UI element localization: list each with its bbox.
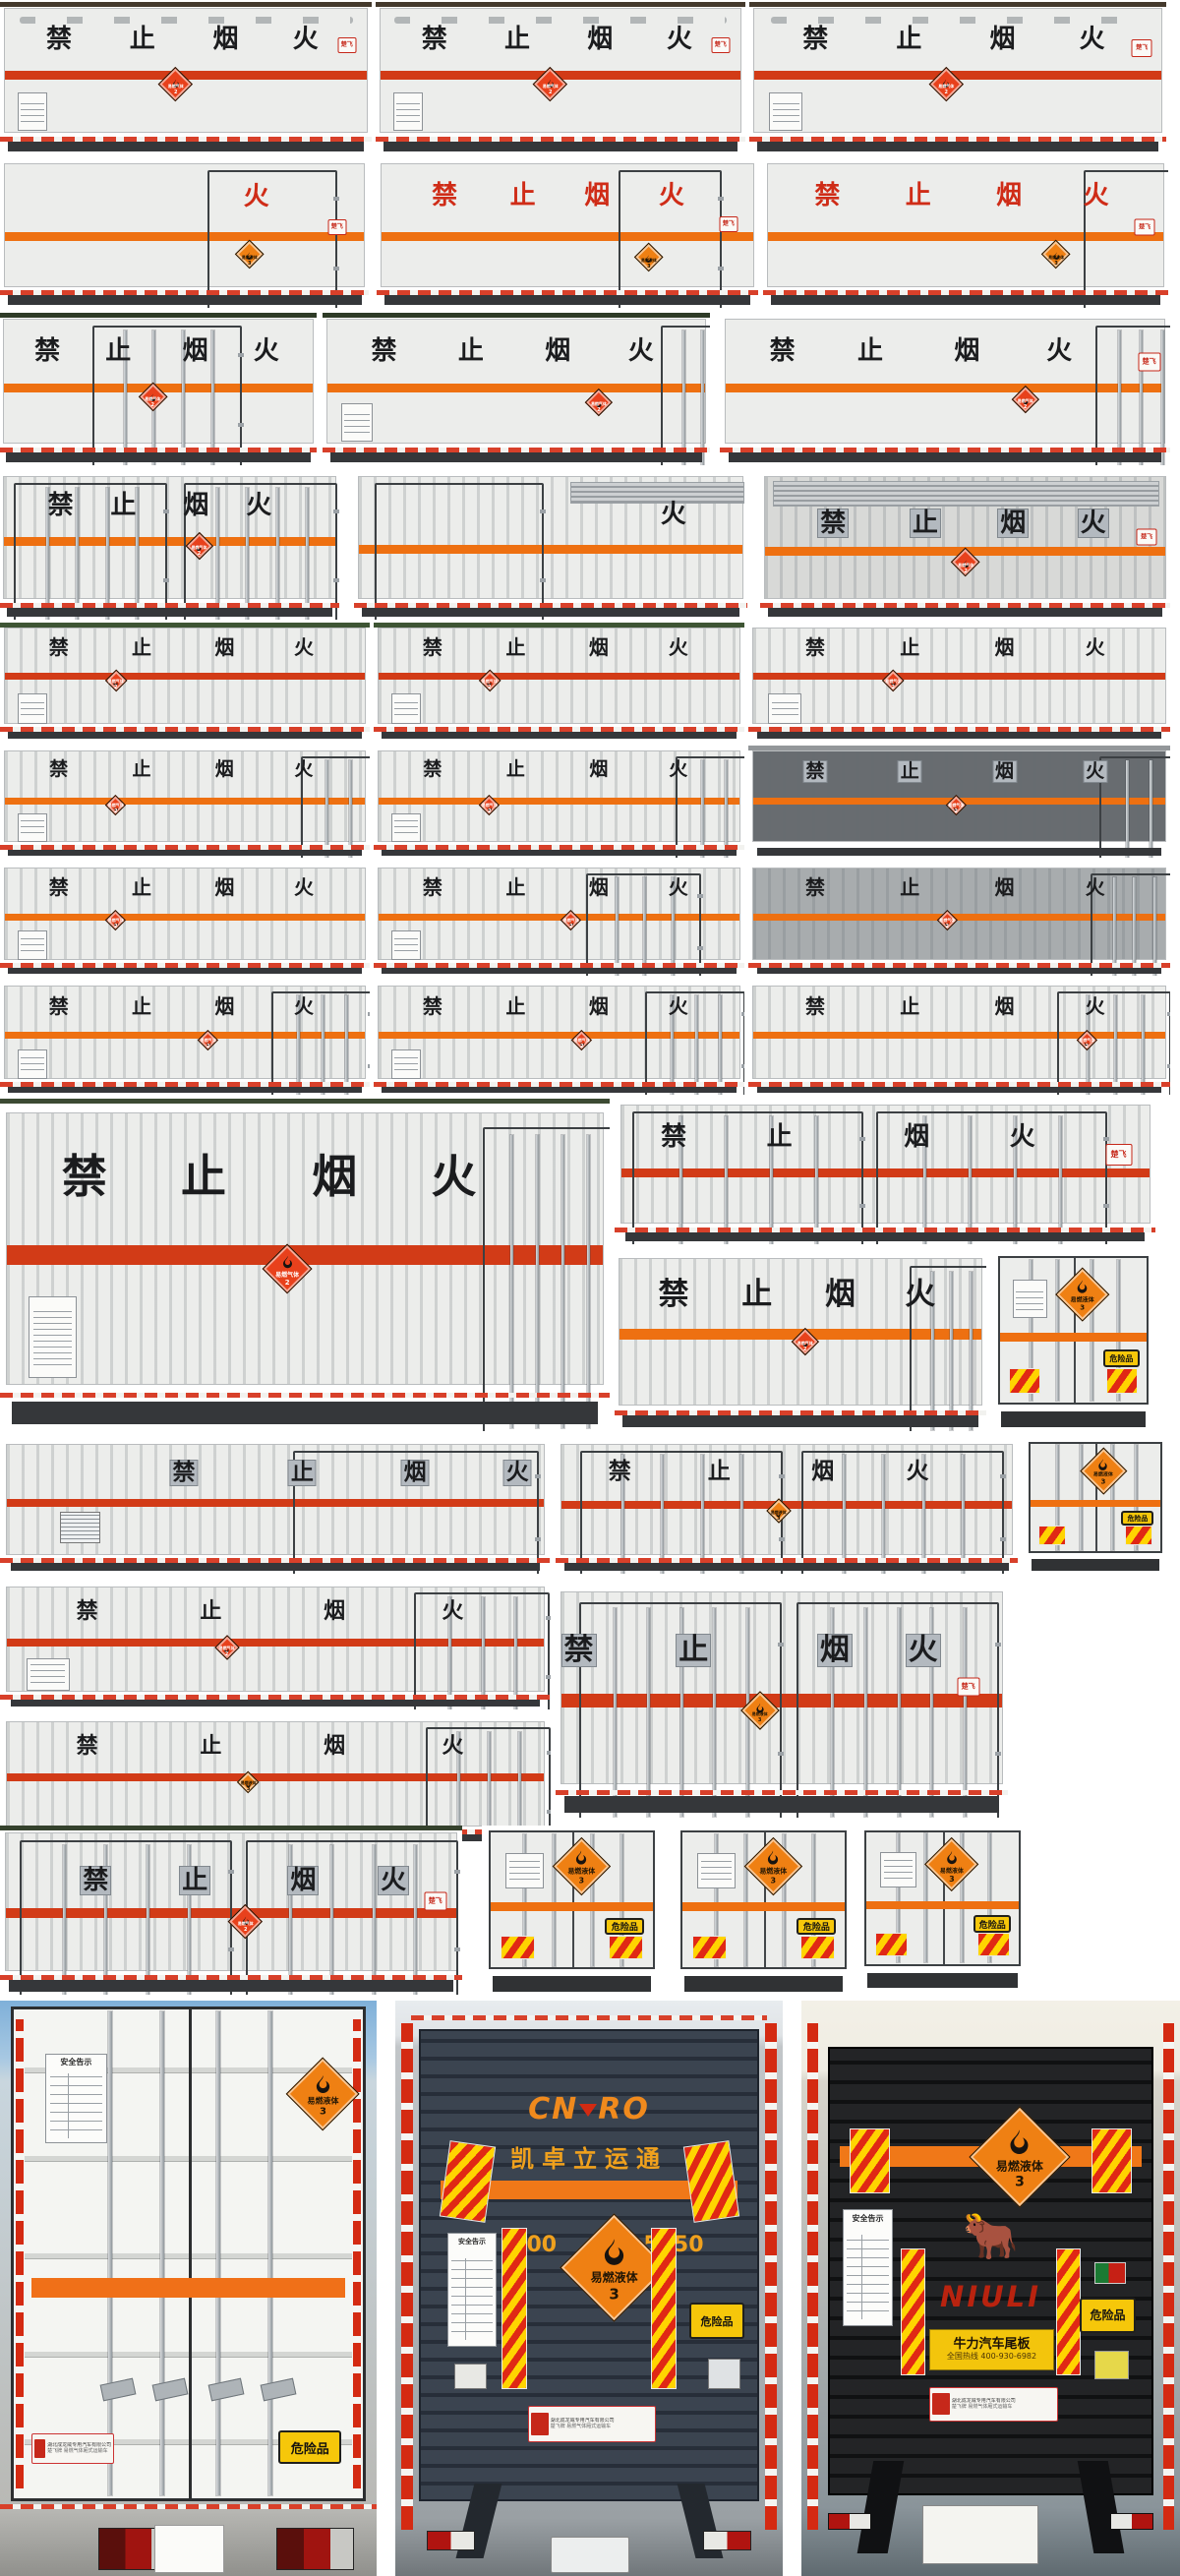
reflective-dash-strip bbox=[0, 727, 370, 732]
chevron-board-inner-left bbox=[501, 2228, 527, 2389]
reflective-dash-strip bbox=[0, 1393, 610, 1398]
no-fireworks-character: 止 bbox=[900, 637, 919, 657]
flame-icon bbox=[112, 672, 119, 679]
no-fireworks-character: 火 bbox=[628, 338, 654, 364]
truck-underbody bbox=[622, 1415, 979, 1428]
ban-char-text: 烟 bbox=[995, 996, 1015, 1016]
brand-badge-text: 楚飞 bbox=[715, 42, 727, 48]
lock-rod-handle bbox=[207, 2377, 244, 2401]
no-fireworks-character: 禁 bbox=[34, 338, 60, 364]
door-lock-rod bbox=[108, 2011, 112, 2495]
ban-char-text: 止 bbox=[896, 27, 921, 52]
placard-class-number: 2 bbox=[114, 809, 117, 814]
reflective-dash-strip bbox=[615, 1228, 1155, 1232]
brand-badge-text: 楚飞 bbox=[331, 224, 343, 230]
ban-char-text: 止 bbox=[900, 996, 919, 1016]
flame-icon bbox=[1022, 390, 1030, 398]
spec-table bbox=[29, 1296, 77, 1378]
no-fireworks-character: 烟 bbox=[324, 1601, 345, 1623]
no-fireworks-character: 火 bbox=[254, 338, 279, 364]
truck-photo-side-view: 禁止烟火易燃气体2 bbox=[0, 863, 370, 976]
flame-icon bbox=[775, 1503, 782, 1510]
door-hinge bbox=[238, 353, 244, 357]
door-hinge bbox=[697, 894, 703, 898]
safety-notice-board: 安全告示 bbox=[45, 2054, 106, 2143]
door-lock-rod bbox=[216, 2011, 220, 2495]
no-fireworks-character: 止 bbox=[900, 877, 919, 897]
hazard-placard: 易燃液体3 bbox=[1059, 1271, 1105, 1317]
no-fireworks-character: 禁 bbox=[48, 493, 74, 518]
vent-grid-panel bbox=[60, 1512, 100, 1543]
ban-char-text: 禁 bbox=[49, 877, 69, 897]
placard-class-number: 2 bbox=[946, 924, 949, 929]
door-lock-rod bbox=[373, 1845, 376, 1995]
truck-underbody bbox=[1001, 1411, 1146, 1427]
no-fireworks-character: 禁 bbox=[62, 1154, 107, 1199]
door-hinge bbox=[697, 946, 703, 950]
door-lock-rod bbox=[643, 877, 646, 976]
door-lock-rod bbox=[970, 1272, 973, 1430]
reflective-frame-right bbox=[1163, 2023, 1175, 2530]
no-fireworks-character: 禁 bbox=[817, 509, 849, 538]
placard-class-number: 3 bbox=[247, 1786, 250, 1792]
spec-table bbox=[391, 930, 421, 960]
no-fireworks-character: 烟 bbox=[214, 877, 234, 897]
brand-badge-text: 楚飞 bbox=[1143, 359, 1156, 366]
ban-char-text: 烟 bbox=[589, 637, 609, 657]
chevron-marker bbox=[692, 1936, 727, 1959]
door-lock-rod bbox=[701, 1455, 704, 1574]
brand-badge-text: 楚飞 bbox=[429, 1897, 442, 1904]
ban-char-text: 止 bbox=[910, 509, 941, 538]
hazard-placard: 易燃气体2 bbox=[265, 1248, 309, 1291]
manufacturer-plate: 湖北成龙威专用汽车有限公司楚飞牌 易燃气体厢式运输车 bbox=[929, 2387, 1057, 2423]
flame-icon bbox=[280, 1255, 295, 1270]
placard-text: 易燃气体 bbox=[275, 1270, 299, 1279]
no-fireworks-character: 止 bbox=[200, 1736, 221, 1758]
ban-char-text: 止 bbox=[505, 877, 525, 897]
spec-table-rows bbox=[394, 698, 418, 720]
ban-char-text: 火 bbox=[442, 1736, 463, 1758]
truck-photo-side-view: 禁止烟火易燃气体2楚飞 bbox=[0, 1826, 462, 1995]
flame-icon bbox=[644, 249, 653, 258]
door-lock-rod bbox=[330, 1845, 333, 1995]
ban-char-text: 禁 bbox=[423, 760, 442, 779]
reflective-dash-strip bbox=[323, 448, 710, 452]
door-hinge bbox=[333, 578, 339, 582]
danger-goods-plate: 危险品 bbox=[278, 2430, 341, 2464]
truck-box-body: 火 bbox=[358, 476, 743, 599]
spec-table bbox=[18, 693, 47, 724]
hazard-stripe bbox=[491, 1902, 652, 1911]
no-fireworks-character: 禁 bbox=[423, 877, 442, 897]
no-fireworks-character: 禁 bbox=[770, 338, 796, 364]
door-hinge bbox=[368, 1064, 370, 1068]
no-fireworks-character: 止 bbox=[767, 1124, 793, 1150]
ban-char-text: 止 bbox=[900, 637, 919, 657]
chevron-marker bbox=[800, 1936, 835, 1959]
spec-table-rows bbox=[1016, 1287, 1043, 1315]
ban-char-text: 烟 bbox=[997, 509, 1029, 538]
placard-class-number: 2 bbox=[803, 1347, 806, 1352]
spec-table-rows bbox=[394, 935, 418, 957]
ban-char-text: 禁 bbox=[432, 183, 457, 209]
background-foliage-strip bbox=[749, 2, 1166, 7]
hazard-placard: 易燃气体2 bbox=[187, 534, 210, 558]
reflective-dash-strip bbox=[0, 845, 370, 850]
flame-icon bbox=[245, 246, 254, 255]
no-fireworks-character: 止 bbox=[510, 183, 536, 209]
door-lock-rod bbox=[1133, 877, 1136, 976]
hazard-placard: 易燃气体2 bbox=[953, 550, 978, 575]
ban-char-text: 烟 bbox=[312, 1154, 357, 1199]
brand-badge-text: 楚飞 bbox=[723, 221, 735, 227]
ban-char-text: 止 bbox=[767, 1124, 793, 1150]
no-fireworks-character: 烟 bbox=[214, 996, 234, 1016]
placard-content: 易燃气体2 bbox=[481, 797, 499, 814]
door-lock-rod bbox=[414, 1845, 417, 1995]
door-lock-rod bbox=[325, 760, 328, 858]
no-fireworks-character: 烟 bbox=[996, 183, 1022, 209]
truck-box-body: 禁止烟火易燃气体2 bbox=[752, 868, 1165, 960]
door-hinge bbox=[333, 197, 339, 201]
truck-photo-side-view: 禁止烟火易燃气体2 bbox=[748, 746, 1170, 858]
no-fireworks-character: 禁 bbox=[46, 27, 72, 52]
truck-box-body: 禁止烟火易燃气体2 bbox=[6, 1112, 604, 1385]
no-fireworks-character: 烟 bbox=[213, 27, 239, 52]
no-fireworks-character: 止 bbox=[505, 996, 525, 1016]
placard-content: 易燃气体2 bbox=[931, 69, 961, 98]
placard-class-number: 2 bbox=[225, 1651, 228, 1657]
no-fireworks-character: 火 bbox=[1079, 27, 1104, 52]
hazard-placard: 易燃气体2 bbox=[481, 797, 499, 814]
no-fireworks-character: 烟 bbox=[825, 1280, 855, 1310]
reflective-dash-strip bbox=[556, 1790, 1008, 1795]
ban-char-text: 止 bbox=[288, 1460, 317, 1486]
hazard-placard: 易燃液体3 bbox=[748, 1841, 798, 1891]
rear-step-plate bbox=[551, 2537, 630, 2573]
cargo-door bbox=[1099, 756, 1170, 858]
no-fireworks-character: 禁 bbox=[805, 637, 825, 657]
door-hinge bbox=[368, 1012, 370, 1016]
no-fireworks-character: 禁 bbox=[372, 338, 397, 364]
no-fireworks-character: 火 bbox=[294, 637, 314, 657]
door-lock-rod bbox=[536, 1135, 539, 1429]
vent-row bbox=[771, 17, 1145, 24]
door-lock-rod bbox=[1056, 1260, 1059, 1401]
door-lock-rod bbox=[898, 1608, 901, 1817]
no-fireworks-character: 禁 bbox=[49, 637, 69, 657]
placard-class-number: 2 bbox=[198, 551, 201, 557]
reflective-dash-strip bbox=[748, 727, 1170, 732]
rear-step-plate bbox=[922, 2505, 1038, 2565]
no-fireworks-character: 火 bbox=[907, 1461, 929, 1483]
ban-char-text: 火 bbox=[661, 502, 686, 527]
door-hinge bbox=[1000, 1474, 1006, 1478]
no-fireworks-character: 禁 bbox=[814, 183, 840, 209]
no-fireworks-character: 火 bbox=[1083, 760, 1107, 783]
ban-char-text: 烟 bbox=[996, 183, 1022, 209]
ban-char-text: 烟 bbox=[214, 637, 234, 657]
ban-char-text: 禁 bbox=[422, 27, 447, 52]
ban-char-text: 火 bbox=[293, 27, 319, 52]
truck-photo-side-view: 禁止烟火易燃气体2 bbox=[0, 746, 370, 858]
no-fireworks-character: 禁 bbox=[805, 996, 825, 1016]
door-lock-rod bbox=[882, 1455, 885, 1574]
chevron-marker bbox=[1038, 1526, 1066, 1544]
hazard-placard: 易燃液体3 bbox=[636, 245, 662, 270]
truck-box-body: 禁止烟火易燃气体2楚飞 bbox=[753, 8, 1162, 133]
door-lock-rod bbox=[682, 330, 685, 465]
box-top-dashes bbox=[411, 2015, 768, 2020]
danger-goods-plate: 危险品 bbox=[973, 1915, 1011, 1932]
no-fireworks-character: 止 bbox=[130, 27, 155, 52]
background-foliage-strip bbox=[0, 1826, 462, 1830]
no-fireworks-character: 火 bbox=[294, 996, 314, 1016]
truck-box-body: 禁止烟火易燃气体2 bbox=[4, 628, 367, 724]
truck-underbody bbox=[564, 1562, 1008, 1572]
truck-box-body: 禁止烟火易燃气体2 bbox=[619, 1258, 982, 1406]
truck-photo-rear-view-small: 易燃液体3危险品 bbox=[991, 1251, 1155, 1431]
ban-char-text: 烟 bbox=[811, 1461, 834, 1483]
niuli-banner-title: 牛力汽车尾板 bbox=[953, 2338, 1030, 2353]
door-lock-rod bbox=[1153, 877, 1156, 976]
truck-underbody bbox=[625, 1231, 1145, 1241]
reflective-dash-strip bbox=[0, 1082, 370, 1087]
ban-char-text: 禁 bbox=[561, 1634, 597, 1667]
truck-photo-side-view: 禁止烟火易燃气体2 bbox=[615, 1251, 986, 1431]
safety-notice-title: 安全告示 bbox=[448, 2237, 496, 2247]
placard-class-number: 3 bbox=[647, 264, 650, 270]
door-hinge bbox=[454, 1870, 460, 1874]
no-fireworks-character: 烟 bbox=[312, 1154, 357, 1199]
ban-char-text: 禁 bbox=[659, 1280, 689, 1310]
spec-table-rows bbox=[21, 818, 44, 839]
door-hinge bbox=[718, 197, 724, 201]
no-fireworks-character: 火 bbox=[906, 1634, 941, 1667]
placard-class-number: 2 bbox=[892, 685, 895, 690]
door-hinge bbox=[163, 578, 169, 582]
flame-icon bbox=[595, 393, 603, 401]
door-lock-rod bbox=[345, 995, 348, 1095]
ban-char-text: 禁 bbox=[805, 637, 825, 657]
manufacturer-text: 湖北成龙威专用汽车有限公司楚飞牌 易燃气体厢式运输车 bbox=[47, 2442, 111, 2454]
door-lock-rod bbox=[1161, 330, 1164, 465]
door-lock-rod bbox=[744, 1834, 747, 1966]
flame-icon bbox=[944, 1850, 960, 1866]
ban-char-text: 烟 bbox=[287, 1866, 319, 1895]
no-fireworks-character: 止 bbox=[506, 760, 525, 779]
placard-content: 易燃气体2 bbox=[947, 797, 965, 814]
no-fireworks-character: 止 bbox=[708, 1461, 731, 1483]
chevron-board-inner-right bbox=[1056, 2248, 1081, 2375]
ban-char-text: 火 bbox=[1079, 27, 1104, 52]
door-lock-rod bbox=[553, 1834, 556, 1966]
no-fireworks-character: 禁 bbox=[77, 1601, 98, 1623]
no-fireworks-character: 烟 bbox=[287, 1866, 319, 1895]
czl-logo: CNRO bbox=[421, 2092, 758, 2127]
manufacturer-plate: 湖北成龙威专用汽车有限公司楚飞牌 易燃气体厢式运输车 bbox=[31, 2433, 114, 2464]
spec-table-rows bbox=[21, 99, 44, 128]
placard-content: 易燃液体3 bbox=[768, 1501, 790, 1523]
ban-char-text: 止 bbox=[105, 338, 131, 364]
flame-icon bbox=[599, 2238, 630, 2269]
hazard-placard: 易燃气体2 bbox=[231, 1906, 261, 1936]
door-hinge bbox=[859, 1137, 865, 1141]
door-lock-rod bbox=[701, 760, 704, 858]
hazard-placard: 易燃液体3 bbox=[567, 2221, 661, 2314]
ban-char-text: 烟 bbox=[183, 338, 208, 364]
no-fireworks-character: 火 bbox=[1086, 637, 1105, 657]
door-lock-rod bbox=[561, 1135, 564, 1429]
chevron-marker bbox=[1106, 1368, 1138, 1393]
flame-icon bbox=[195, 537, 203, 545]
truck-underbody bbox=[493, 1976, 651, 1991]
reflective-dash-strip bbox=[374, 1082, 744, 1087]
safety-notice-divider bbox=[861, 2235, 862, 2319]
flame-icon bbox=[546, 74, 556, 84]
background-foliage-strip bbox=[376, 2, 745, 7]
truck-photo-side-view: 禁止烟火易燃气体2 bbox=[748, 863, 1170, 976]
placard-text: 易燃液体 bbox=[1071, 1294, 1094, 1303]
placard-class-number: 2 bbox=[174, 90, 177, 95]
no-fireworks-character: 止 bbox=[896, 27, 921, 52]
door-lock-rod bbox=[962, 1455, 965, 1574]
truck-box-body: 禁止烟火易燃气体2楚飞 bbox=[4, 8, 368, 133]
no-fireworks-character: 止 bbox=[504, 27, 530, 52]
cargo-door bbox=[414, 1592, 550, 1709]
rear-door-panel: 易燃液体3危险品 bbox=[864, 1830, 1021, 1966]
placard-content: 易燃气体2 bbox=[953, 550, 978, 575]
ban-char-text: 禁 bbox=[805, 877, 825, 897]
door-lock-rod bbox=[160, 2011, 164, 2495]
placard-class-number: 3 bbox=[758, 1717, 761, 1723]
no-fireworks-character: 止 bbox=[132, 637, 151, 657]
flame-icon bbox=[312, 2074, 333, 2096]
truck-photo-side-view: 禁止烟火楚飞 bbox=[615, 1099, 1155, 1244]
spec-table-rows bbox=[396, 99, 420, 128]
truck-photo-side-view: 禁止烟火易燃气体2 bbox=[0, 1099, 610, 1431]
truck-photo-rear-czl-taillift: CNRO凯卓立运通4005550易燃液体3安全告示危险品湖北成龙威专用汽车有限公… bbox=[395, 2001, 783, 2576]
ban-char-text: 止 bbox=[133, 760, 151, 779]
lock-rod-handle bbox=[260, 2377, 296, 2401]
placard-class-number: 2 bbox=[1024, 404, 1027, 410]
door-hinge bbox=[228, 1947, 234, 1951]
no-fireworks-character: 火 bbox=[661, 502, 686, 527]
placard-content: 易燃液体3 bbox=[636, 245, 662, 270]
no-fireworks-character: 禁 bbox=[805, 877, 825, 897]
door-hinge bbox=[535, 1537, 541, 1541]
hazard-placard: 易燃气体2 bbox=[216, 1637, 238, 1658]
ban-char-text: 烟 bbox=[584, 183, 610, 209]
ban-char-text: 禁 bbox=[423, 996, 442, 1016]
reflective-dash-strip bbox=[354, 603, 747, 608]
hazard-placard: 易燃液体3 bbox=[928, 1841, 975, 1888]
no-fireworks-character: 禁 bbox=[80, 1866, 111, 1895]
chevron-marker bbox=[609, 1936, 643, 1959]
flame-icon bbox=[1052, 246, 1061, 255]
manufacturer-logo bbox=[531, 2413, 548, 2435]
manufacturer-line2: 楚飞牌 易燃气体厢式运输车 bbox=[551, 2424, 615, 2429]
placard-content: 易燃液体3 bbox=[1059, 1271, 1105, 1317]
no-fireworks-character: 火 bbox=[244, 184, 269, 210]
chevron-marker bbox=[977, 1933, 1010, 1955]
ban-char-text: 止 bbox=[200, 1601, 221, 1623]
ban-char-text: 禁 bbox=[77, 1736, 98, 1758]
flame-icon bbox=[941, 74, 951, 84]
placard-class-number: 2 bbox=[549, 90, 552, 95]
truck-box-body: 禁止烟火易燃气体2 bbox=[326, 319, 706, 444]
safety-notice-title: 安全告示 bbox=[844, 2213, 892, 2224]
truck-photo-rear-view-small: 易燃液体3危险品 bbox=[482, 1826, 662, 1995]
brand-badge: 楚飞 bbox=[957, 1677, 979, 1696]
ban-char-text: 火 bbox=[378, 1866, 409, 1895]
placard-content: 易燃气体2 bbox=[1078, 1032, 1095, 1049]
no-fireworks-character: 火 bbox=[669, 760, 687, 779]
no-fireworks-character: 火 bbox=[1010, 1124, 1035, 1150]
truck-photo-side-view: 禁止烟火易燃气体2 bbox=[323, 313, 710, 465]
hazard-placard: 易燃气体2 bbox=[587, 390, 611, 414]
hazard-stripe bbox=[327, 384, 705, 392]
ban-char-text: 烟 bbox=[989, 27, 1015, 52]
truck-underbody bbox=[757, 141, 1157, 151]
no-fireworks-character: 火 bbox=[431, 1154, 476, 1199]
reflective-dash-strip bbox=[374, 727, 744, 732]
truck-underbody bbox=[771, 294, 1160, 305]
ban-char-text: 止 bbox=[110, 493, 136, 518]
brand-badge-text: 楚飞 bbox=[1139, 224, 1150, 230]
ban-char-text: 火 bbox=[246, 493, 271, 518]
truck-photo-side-view: 禁止烟火易燃气体2 bbox=[0, 313, 317, 465]
door-lock-rod bbox=[969, 1116, 972, 1244]
truck-box-body: 禁止烟火易燃气体2 bbox=[378, 986, 740, 1079]
no-fireworks-character: 烟 bbox=[589, 637, 609, 657]
chevron-marker bbox=[875, 1933, 908, 1955]
placard-text: 易燃液体 bbox=[1093, 1471, 1113, 1478]
no-fireworks-character: 止 bbox=[857, 338, 883, 364]
reflective-dash-strip bbox=[0, 1975, 462, 1980]
truck-box-body: 禁止烟火易燃气体2 bbox=[3, 476, 335, 599]
placard-text: 易燃液体 bbox=[567, 1867, 595, 1877]
yellow-sticker bbox=[1094, 2351, 1129, 2379]
door-hinge bbox=[718, 267, 724, 270]
placard-class-number: 2 bbox=[244, 1927, 247, 1933]
hazard-stripe bbox=[31, 2278, 345, 2298]
cargo-door bbox=[246, 1840, 458, 1995]
brand-badge: 楚飞 bbox=[1135, 219, 1155, 236]
hazard-stripe bbox=[5, 914, 366, 921]
spec-table bbox=[391, 1049, 421, 1079]
ban-char-text: 止 bbox=[179, 1866, 210, 1895]
no-fireworks-character: 止 bbox=[181, 1154, 226, 1199]
flame-icon bbox=[1096, 1458, 1110, 1471]
truck-box-body: 禁止烟火易燃气体2 bbox=[4, 986, 367, 1079]
spec-table bbox=[768, 693, 801, 724]
door-hinge bbox=[995, 1752, 1001, 1756]
placard-class-number: 3 bbox=[949, 1875, 955, 1884]
ban-char-text: 烟 bbox=[324, 1601, 345, 1623]
door-lock-rod bbox=[864, 1608, 867, 1817]
ban-char-text: 止 bbox=[708, 1461, 731, 1483]
truck-box-body: 禁止烟火易燃气体2 bbox=[752, 986, 1165, 1079]
placard-class-number: 2 bbox=[964, 569, 967, 574]
reflective-dash-strip bbox=[0, 137, 372, 142]
spec-table bbox=[1013, 1280, 1047, 1318]
no-fireworks-character: 烟 bbox=[589, 760, 608, 779]
danger-goods-plate: 危险品 bbox=[605, 1918, 644, 1936]
truck-box-body: 禁止烟火易燃液体3 bbox=[6, 1721, 546, 1827]
ban-char-text: 禁 bbox=[423, 877, 442, 897]
